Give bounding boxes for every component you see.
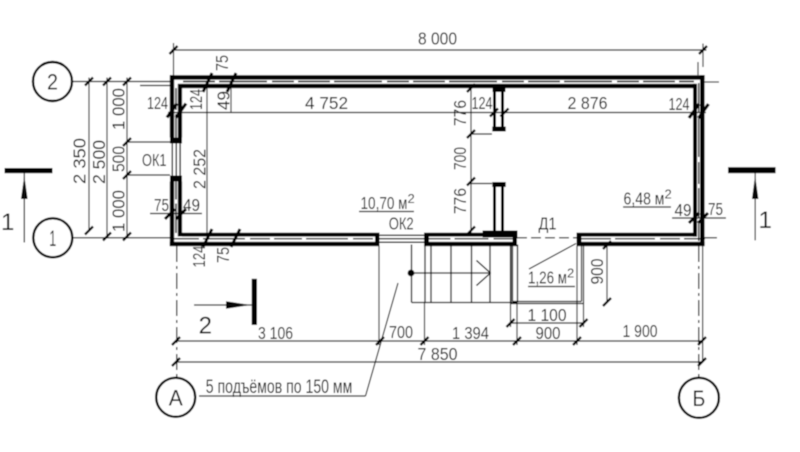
svg-text:ОК2: ОК2 (389, 214, 414, 234)
svg-text:700: 700 (450, 147, 470, 170)
svg-text:3 106: 3 106 (258, 323, 293, 343)
svg-text:75: 75 (708, 199, 723, 219)
svg-text:776: 776 (450, 188, 470, 214)
svg-text:2 876: 2 876 (568, 93, 608, 113)
svg-text:776: 776 (450, 100, 470, 126)
svg-text:6,48 м: 6,48 м (624, 189, 665, 209)
svg-text:1 000: 1 000 (109, 190, 129, 232)
svg-text:500: 500 (109, 146, 129, 172)
svg-text:75: 75 (154, 195, 169, 215)
svg-text:2 252: 2 252 (190, 149, 210, 189)
svg-text:2: 2 (567, 266, 574, 281)
svg-text:1 900: 1 900 (623, 321, 658, 341)
svg-text:5 подъёмов по 150 мм: 5 подъёмов по 150 мм (206, 377, 352, 398)
svg-text:7 850: 7 850 (418, 344, 458, 364)
svg-text:75: 75 (213, 247, 233, 263)
svg-text:49: 49 (675, 200, 692, 220)
svg-text:1: 1 (1, 209, 14, 236)
svg-text:49: 49 (183, 195, 200, 215)
svg-text:8 000: 8 000 (418, 29, 457, 49)
svg-text:Б: Б (692, 386, 705, 411)
svg-text:2 350: 2 350 (70, 138, 90, 184)
svg-text:Д1: Д1 (539, 214, 557, 234)
svg-text:2: 2 (665, 187, 672, 202)
svg-text:10,70 м: 10,70 м (361, 193, 408, 213)
svg-text:75: 75 (212, 55, 232, 71)
svg-text:2: 2 (47, 70, 58, 95)
svg-text:1,26 м: 1,26 м (528, 268, 567, 288)
svg-text:1: 1 (759, 207, 772, 234)
svg-text:124: 124 (189, 245, 209, 267)
svg-text:А: А (169, 385, 183, 410)
svg-text:2: 2 (199, 313, 212, 340)
svg-text:ОК1: ОК1 (142, 150, 167, 170)
svg-text:49: 49 (214, 91, 234, 110)
svg-text:900: 900 (587, 258, 607, 284)
svg-text:124: 124 (472, 93, 493, 113)
svg-text:1: 1 (49, 226, 56, 251)
svg-text:124: 124 (186, 89, 206, 110)
svg-text:700: 700 (389, 322, 413, 342)
svg-text:1 394: 1 394 (452, 323, 489, 343)
svg-text:1 000: 1 000 (109, 88, 129, 130)
svg-text:124: 124 (669, 94, 690, 114)
svg-text:124: 124 (147, 93, 168, 113)
svg-text:1 100: 1 100 (528, 305, 567, 325)
svg-text:2: 2 (408, 191, 415, 206)
svg-text:900: 900 (536, 323, 561, 343)
svg-text:2 500: 2 500 (89, 140, 109, 184)
svg-text:4 752: 4 752 (305, 93, 348, 113)
